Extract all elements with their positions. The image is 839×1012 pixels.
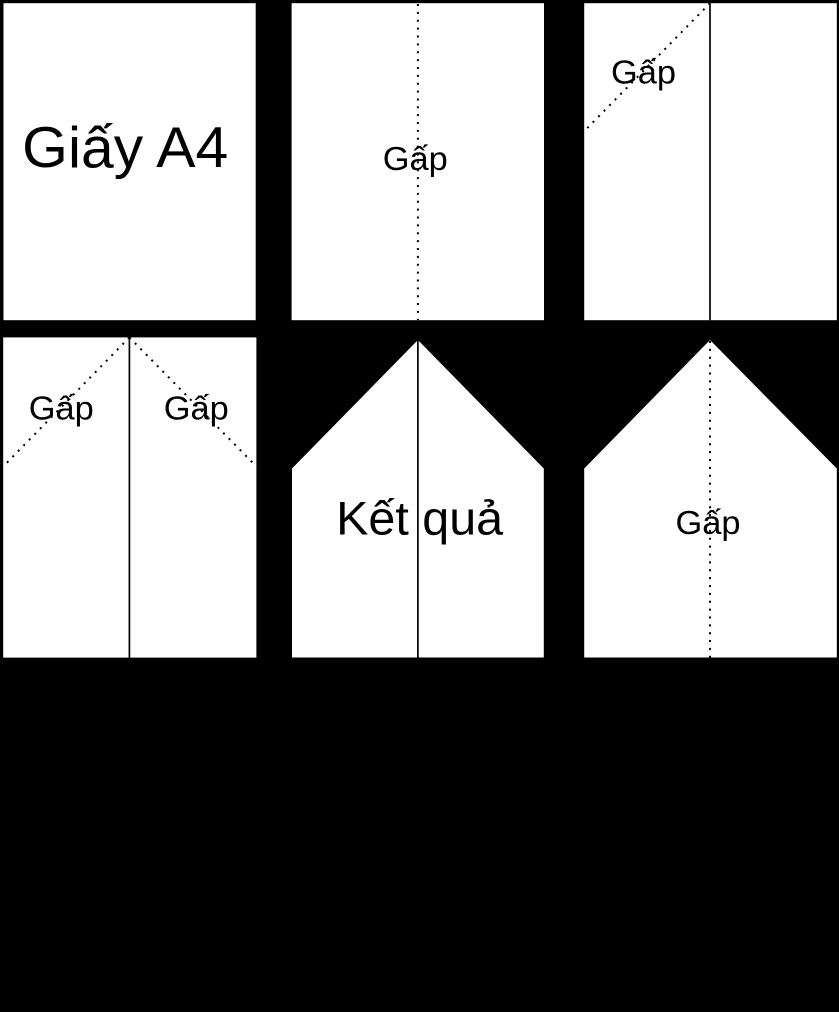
svg-text:Gấp: Gấp <box>676 504 741 541</box>
svg-text:Gấp: Gấp <box>611 54 676 91</box>
svg-text:Gấp: Gấp <box>383 140 448 177</box>
svg-text:Gấp: Gấp <box>164 389 229 426</box>
svg-text:Gấp: Gấp <box>29 389 94 426</box>
svg-text:Kết quả: Kết quả <box>336 492 504 545</box>
svg-text:Giấy A4: Giấy A4 <box>22 116 228 180</box>
